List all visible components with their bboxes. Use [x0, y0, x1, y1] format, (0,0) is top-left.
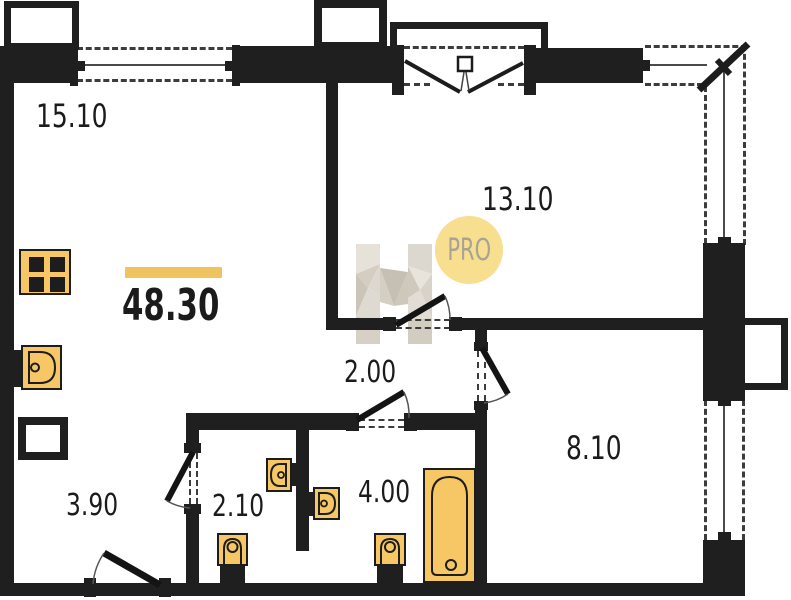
door-post: [474, 342, 488, 351]
wall-hall-bedroom: [326, 318, 384, 330]
window-dash: [704, 400, 707, 540]
window-sash: [405, 61, 460, 92]
window-dash: [645, 45, 747, 48]
window-dash: [77, 79, 232, 82]
door-post: [404, 413, 417, 431]
window-tab: [718, 532, 731, 540]
wall-top-left: [0, 46, 77, 83]
floor-plan: PRO: [0, 0, 791, 600]
wall-wc-top: [186, 413, 296, 430]
window-sash-line: [461, 72, 464, 91]
door-post: [84, 578, 96, 597]
total-area-label: 48.30: [122, 284, 219, 328]
toilet-icon: [217, 533, 248, 566]
window-tab: [643, 60, 650, 71]
window-glass-line: [723, 406, 725, 534]
door-post: [184, 504, 201, 514]
room-label-wc: 2.10: [212, 492, 264, 522]
window-dash: [743, 45, 746, 245]
window-dash: [404, 46, 524, 49]
wall-room-right-divider: [475, 409, 487, 583]
window-dash: [704, 86, 707, 244]
facade-ledge: [390, 22, 548, 29]
wall-hall-bedroom: [461, 318, 705, 330]
watermark-pro-badge: PRO: [435, 216, 503, 284]
room-label-bedroom: 13.10: [482, 183, 553, 215]
window-glass-line: [650, 64, 707, 66]
total-area-accent-bar: [125, 267, 222, 278]
stove-icon: [19, 249, 71, 295]
room-label-bathroom: 4.00: [358, 478, 410, 508]
window-tab: [718, 398, 731, 406]
toilet-tank: [220, 566, 245, 584]
sink-bracket: [291, 463, 298, 486]
room-label-living: 15.10: [36, 100, 107, 132]
window-dash: [404, 83, 430, 86]
room-label-hallway: 2.00: [344, 358, 396, 388]
wall-entry-wc-divider: [186, 413, 199, 444]
window-dash: [645, 83, 703, 86]
wall-bedroom-divider: [326, 83, 338, 330]
sink-icon: [313, 487, 340, 520]
wall-entry-wc-divider: [186, 513, 199, 583]
window-handle: [458, 57, 472, 71]
door-opening-dash: [359, 426, 404, 428]
door-opening-dash: [484, 351, 486, 401]
door-opening-dash: [396, 319, 450, 321]
window-glass-line: [85, 64, 225, 66]
door-post: [474, 401, 488, 410]
door-opening-dash: [189, 453, 191, 504]
window-post: [392, 45, 404, 95]
toilet-tank: [377, 566, 403, 584]
entry-niche: [18, 417, 68, 460]
sink-icon: [21, 345, 62, 390]
sink-icon: [266, 458, 292, 492]
wall-bath-top: [416, 413, 475, 430]
door-post: [383, 317, 396, 331]
window-sash: [468, 63, 523, 92]
door-opening-dash: [359, 419, 404, 421]
window-sash-line: [466, 72, 469, 91]
entrance-door-leaf: [104, 553, 160, 585]
balcony-top-left: [4, 1, 79, 50]
window-dash: [77, 47, 232, 50]
door-opening-dash: [477, 351, 479, 401]
door-post: [449, 317, 462, 331]
wall-right-middle: [703, 243, 745, 401]
window-dash: [498, 83, 524, 86]
door-opening-dash: [396, 327, 450, 329]
window-tab: [225, 61, 233, 71]
wall-bottom: [0, 583, 745, 596]
room-label-entry: 3.90: [66, 491, 118, 521]
facade-ledge-stub: [541, 22, 548, 48]
window-tab: [718, 237, 731, 245]
wall-top-middle: [232, 46, 392, 83]
balcony-right-border: [781, 318, 788, 390]
window-dash: [742, 400, 745, 540]
window-glass-line: [723, 64, 725, 240]
balcony-right-border: [745, 383, 788, 390]
room-label-room-right: 8.10: [566, 432, 622, 464]
window-post: [232, 45, 240, 86]
window-post: [524, 45, 536, 95]
door-post: [346, 413, 359, 431]
door-post: [159, 578, 171, 597]
wall-bath-top: [309, 413, 347, 430]
door-leaf: [357, 392, 404, 420]
toilet-icon: [374, 533, 406, 566]
door-opening-dash: [196, 453, 198, 504]
bathtub-icon: [423, 468, 476, 583]
vent-shaft: [314, 0, 387, 50]
wall-top-right: [528, 48, 643, 83]
watermark-pro-text: PRO: [447, 233, 491, 268]
wall-left: [0, 46, 14, 596]
door-post: [184, 443, 201, 453]
window-tab: [77, 61, 85, 71]
